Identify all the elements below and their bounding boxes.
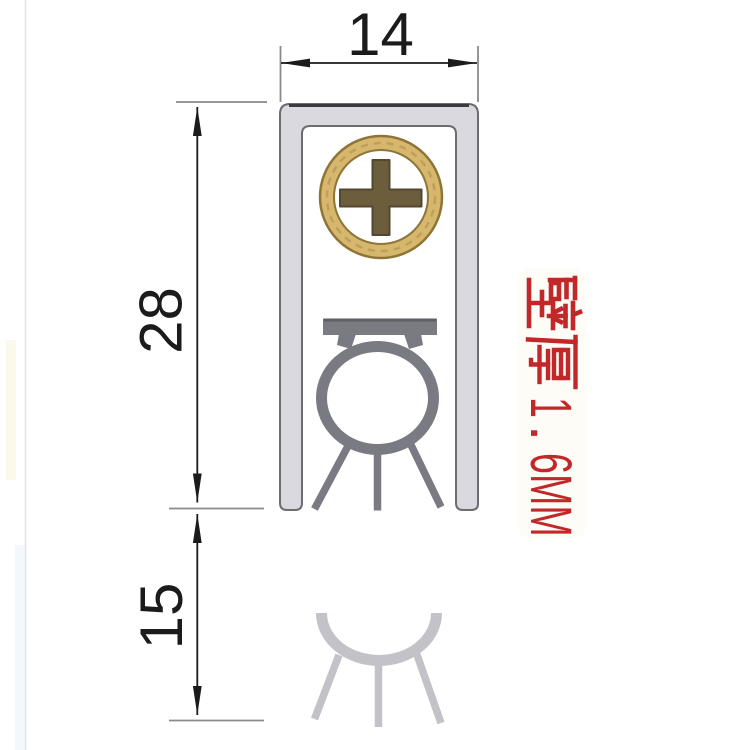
svg-text:6MM: 6MM	[518, 453, 582, 537]
svg-text:1: 1	[518, 397, 582, 418]
svg-text:15: 15	[128, 583, 195, 650]
svg-text:28: 28	[128, 287, 195, 354]
svg-text:.: .	[518, 425, 583, 441]
svg-text:14: 14	[347, 1, 414, 68]
